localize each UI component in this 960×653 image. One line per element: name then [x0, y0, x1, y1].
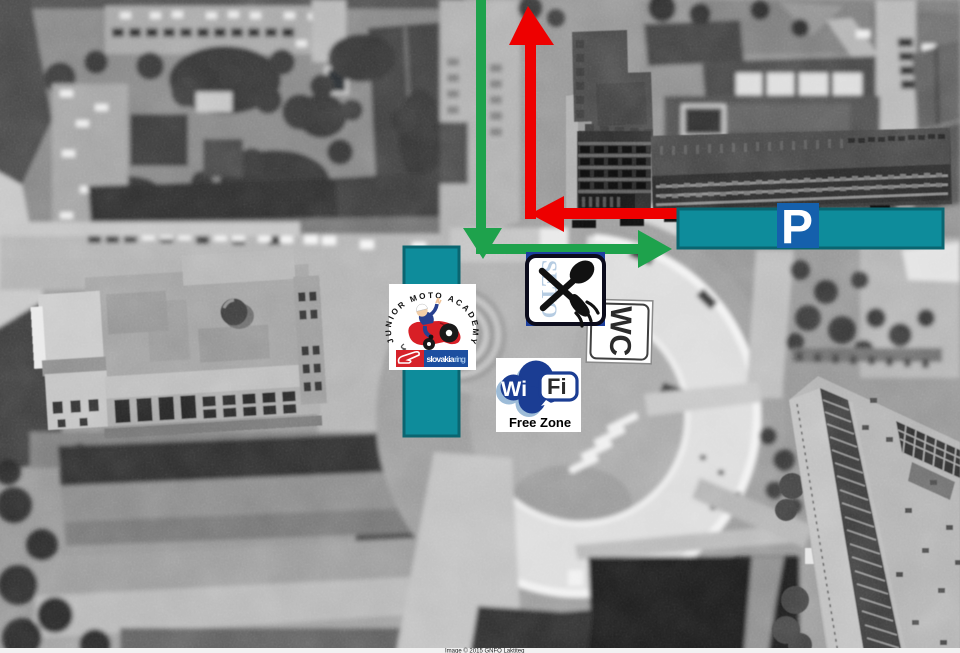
svg-text:Wi: Wi: [501, 377, 527, 401]
svg-text:slovakia: slovakia: [427, 354, 455, 364]
svg-text:ring: ring: [454, 354, 466, 364]
svg-text:WC: WC: [603, 306, 637, 357]
svg-text:P: P: [781, 201, 813, 254]
svg-text:Free Zone: Free Zone: [509, 415, 571, 430]
svg-text:Image © 2015 GNFO Laktiteq: Image © 2015 GNFO Laktiteq: [445, 648, 524, 653]
svg-text:Fi: Fi: [547, 374, 567, 399]
